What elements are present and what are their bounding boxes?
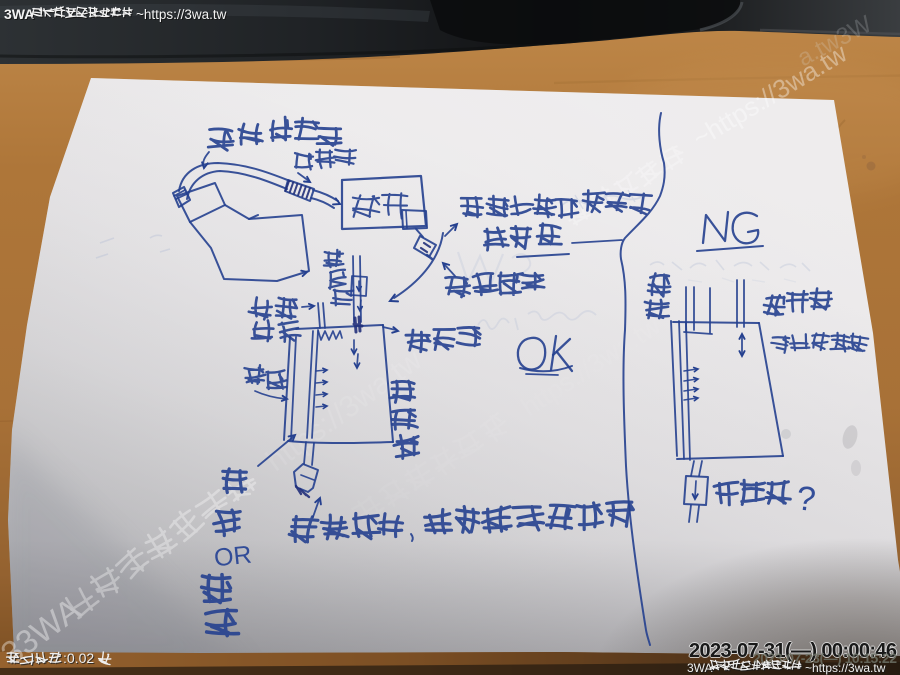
svg-text:~https://3wa.tw: ~https://3wa.tw	[805, 661, 886, 675]
svg-text:~https://3wa.tw: ~https://3wa.tw	[136, 7, 227, 22]
svg-text:3WA: 3WA	[687, 661, 713, 675]
svg-text:OR: OR	[213, 541, 253, 573]
svg-text:?: ?	[795, 479, 818, 519]
svg-text:3WA: 3WA	[4, 6, 34, 22]
svg-text::0.02: :0.02	[63, 650, 94, 666]
